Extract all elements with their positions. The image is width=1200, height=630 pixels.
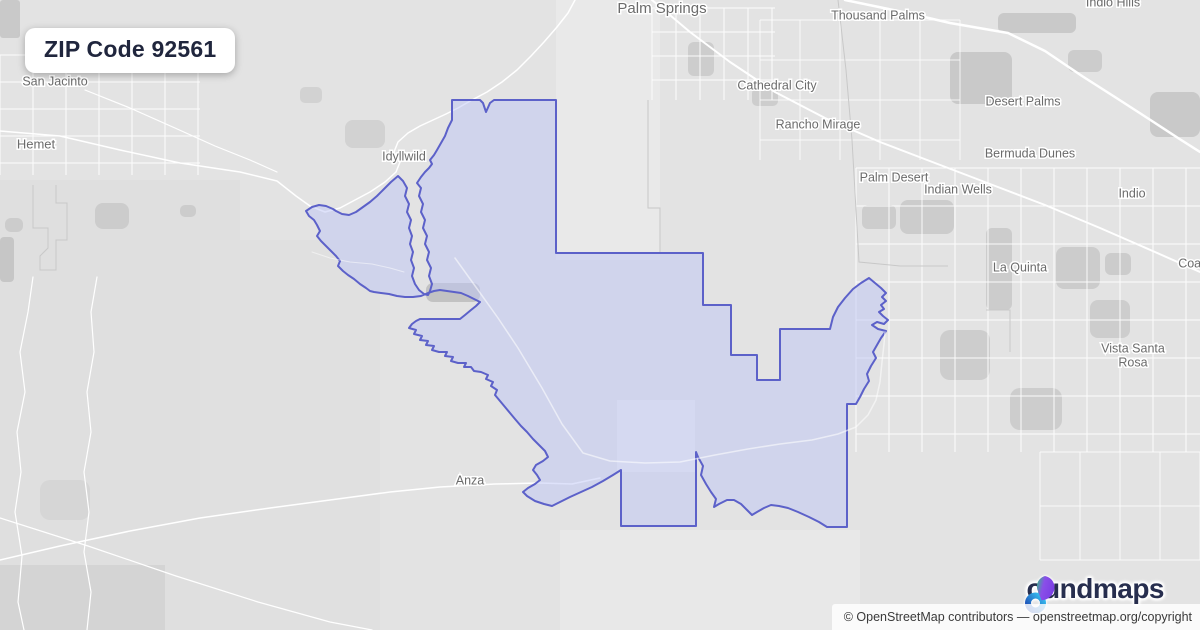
- city-label-palm-springs: Palm Springs: [617, 0, 706, 17]
- city-label-la-quinta: La Quinta: [993, 260, 1047, 274]
- map-canvas[interactable]: Palm SpringsThousand PalmsIndio HillsCat…: [0, 0, 1200, 630]
- terrain-patch: [1056, 247, 1100, 289]
- terrain-patch: [560, 530, 860, 630]
- terrain-patch: [300, 87, 322, 103]
- city-label-san-jacinto: San Jacinto: [22, 74, 87, 88]
- terrain-patch: [95, 203, 129, 229]
- terrain-patch: [200, 240, 380, 630]
- terrain-patch: [556, 0, 660, 260]
- city-label-rancho-mirage: Rancho Mirage: [776, 117, 861, 131]
- city-label-coachella: Coachella: [1178, 256, 1200, 270]
- terrain-patch: [0, 237, 14, 282]
- city-label-indio-hills: Indio Hills: [1086, 0, 1140, 9]
- terrain-patch: [345, 120, 385, 148]
- city-label-idyllwild: Idyllwild: [382, 149, 426, 163]
- city-label-indian-wells: Indian Wells: [924, 182, 992, 196]
- terrain-patch: [180, 205, 196, 217]
- zip-title-card: ZIP Code 92561: [25, 28, 235, 73]
- terrain-patch: [940, 330, 990, 380]
- city-label-anza: Anza: [456, 473, 485, 487]
- city-label-rosa: Rosa: [1118, 355, 1147, 369]
- boundmaps-logo: oundmaps: [1025, 575, 1164, 603]
- terrain-patch: [900, 200, 954, 234]
- city-label-palm-desert: Palm Desert: [860, 170, 929, 184]
- city-label-vista-santa: Vista Santa: [1101, 341, 1165, 355]
- terrain-patch: [40, 480, 90, 520]
- terrain-patch: [1090, 300, 1130, 338]
- zip-title-text: ZIP Code 92561: [44, 36, 216, 62]
- attribution-bar: © OpenStreetMap contributors — openstree…: [832, 604, 1200, 630]
- terrain-patch: [0, 0, 20, 38]
- city-label-indio: Indio: [1118, 186, 1145, 200]
- city-label-hemet: Hemet: [17, 136, 56, 151]
- attribution-link[interactable]: © OpenStreetMap contributors — openstree…: [844, 610, 1192, 624]
- city-label-desert-palms: Desert Palms: [985, 94, 1060, 108]
- terrain-patch: [862, 205, 896, 229]
- terrain-patch: [0, 565, 165, 630]
- terrain-patch: [1105, 253, 1131, 275]
- city-label-thousand-palms: Thousand Palms: [831, 8, 925, 22]
- terrain-patch: [1150, 92, 1200, 137]
- map-screenshot: Palm SpringsThousand PalmsIndio HillsCat…: [0, 0, 1200, 630]
- city-label-cathedral-city: Cathedral City: [737, 78, 817, 92]
- city-label-bermuda-dunes: Bermuda Dunes: [985, 146, 1075, 160]
- terrain-patch: [998, 13, 1076, 33]
- terrain-patch: [5, 218, 23, 232]
